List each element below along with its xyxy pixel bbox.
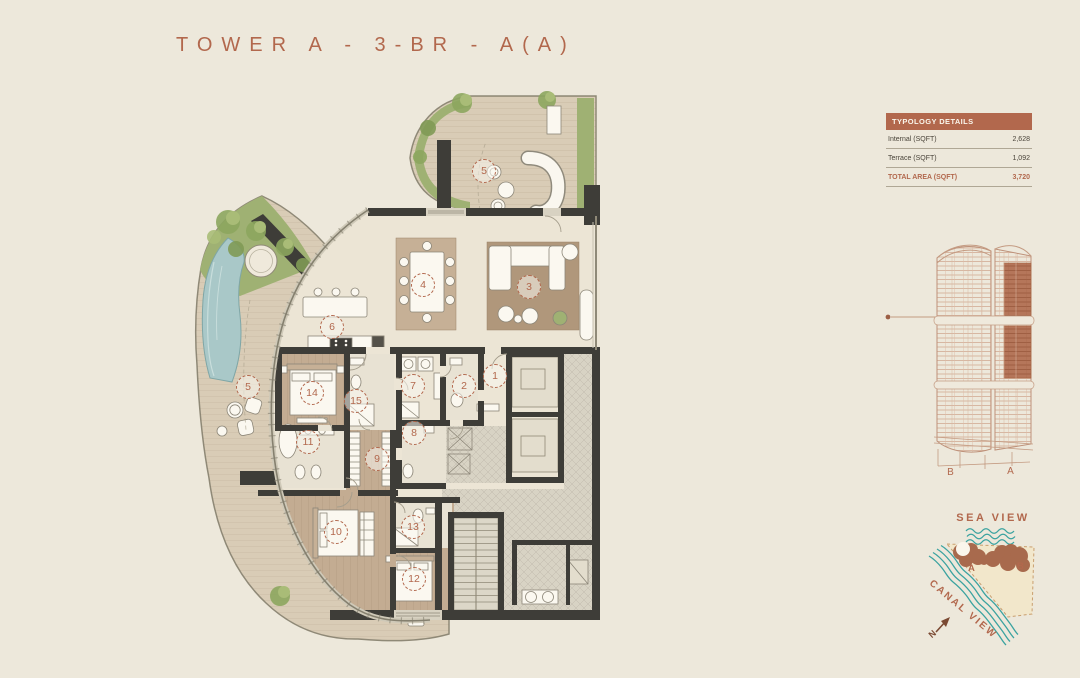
- cooktop: [330, 338, 352, 348]
- tower-b-slab: [937, 247, 991, 453]
- tower-label-a: A: [1004, 466, 1018, 477]
- row-value: 2,628: [1012, 136, 1030, 143]
- typology-details-table: TYPOLOGY DETAILS Internal (SQFT) 2,628 T…: [886, 113, 1032, 187]
- leader-dot: [886, 315, 891, 320]
- typology-header: TYPOLOGY DETAILS: [886, 113, 1032, 130]
- bed-12-headboard: [392, 556, 434, 561]
- sea-view-label: SEA VIEW: [948, 512, 1038, 524]
- kitchen-island: [303, 297, 367, 317]
- page-title: TOWER A - 3-BR - A(A): [176, 34, 576, 57]
- window-chaise: [580, 290, 593, 340]
- upper-terrace: [410, 91, 596, 213]
- site-building-a-label: A: [968, 563, 975, 574]
- bed-14-headboard: [287, 364, 337, 370]
- wave-row: [966, 529, 1014, 534]
- dining-table: [410, 252, 444, 312]
- row-label: Internal (SQFT): [888, 136, 937, 143]
- row-value: 3,720: [1012, 174, 1030, 181]
- typology-row-terrace: Terrace (SQFT) 1,092: [886, 149, 1032, 168]
- site-building-b-label: B: [1017, 561, 1024, 572]
- upper-terrace-wall: [437, 140, 451, 212]
- tower-elevation: [886, 245, 1034, 469]
- typology-row-total: TOTAL AREA (SQFT) 3,720: [886, 168, 1032, 187]
- building-a-highlight: [956, 542, 970, 556]
- stairwell: [454, 518, 498, 610]
- highlight-band-lower: [1004, 326, 1031, 378]
- brochure-page: 5346514157218119101312 TOWER A - 3-BR - …: [0, 0, 1080, 678]
- typology-row-internal: Internal (SQFT) 2,628: [886, 130, 1032, 149]
- highlight-band-upper: [1004, 263, 1031, 320]
- row-label: TOTAL AREA (SQFT): [888, 174, 957, 181]
- north-arrow: [936, 617, 950, 632]
- row-value: 1,092: [1012, 155, 1030, 162]
- row-label: Terrace (SQFT): [888, 155, 937, 162]
- bed-10-headboard: [313, 508, 318, 558]
- tower-label-b: B: [944, 467, 958, 478]
- floor-plan-graphics: [0, 0, 1080, 678]
